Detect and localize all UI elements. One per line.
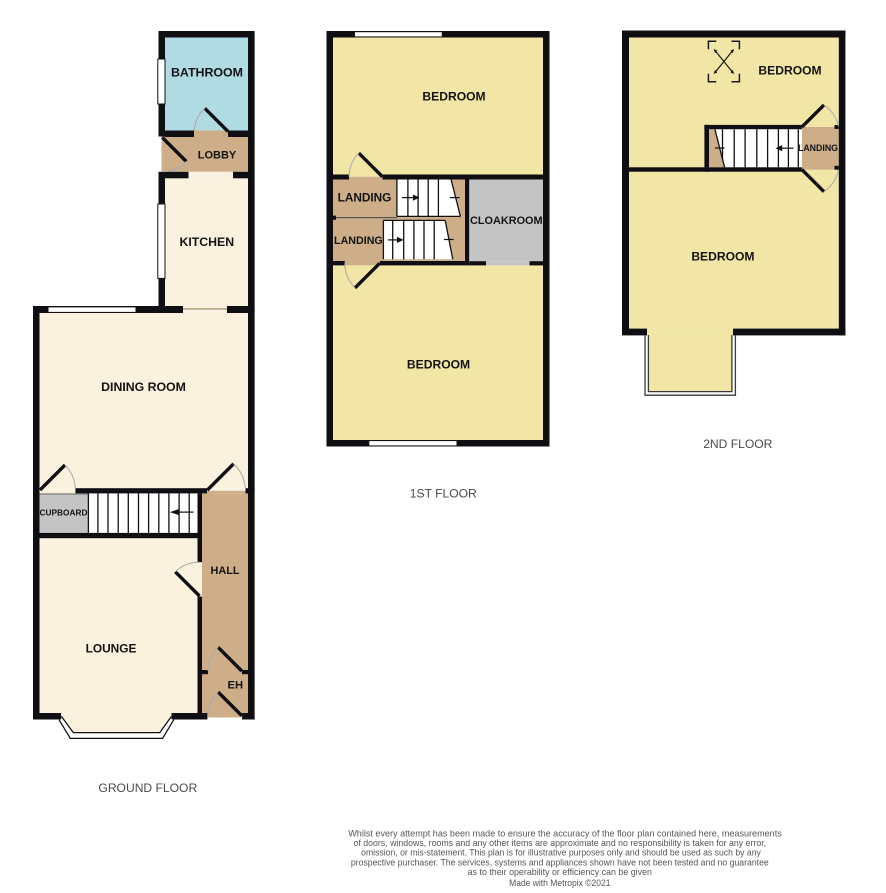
svg-text:HALL: HALL: [210, 565, 239, 577]
svg-text:KITCHEN: KITCHEN: [179, 235, 234, 249]
svg-text:as to their operability or eff: as to their operability or efficiency ca…: [468, 867, 652, 877]
svg-text:of doors, windows, rooms and a: of doors, windows, rooms and any other i…: [353, 838, 766, 848]
svg-text:LOBBY: LOBBY: [198, 150, 237, 162]
svg-text:BATHROOM: BATHROOM: [171, 66, 243, 80]
svg-text:omission, or mis-statement. Th: omission, or mis-statement. This plan is…: [361, 848, 761, 858]
svg-text:Made with Metropix ©2021: Made with Metropix ©2021: [509, 878, 610, 888]
svg-text:LANDING: LANDING: [338, 191, 392, 205]
svg-text:BEDROOM: BEDROOM: [758, 63, 821, 77]
svg-text:LANDING: LANDING: [798, 143, 838, 153]
svg-text:LANDING: LANDING: [334, 235, 383, 247]
svg-text:Whilst every attempt has been: Whilst every attempt has been made to en…: [348, 828, 782, 838]
svg-text:2ND FLOOR: 2ND FLOOR: [703, 437, 772, 451]
svg-text:EH: EH: [228, 680, 244, 692]
svg-text:1ST FLOOR: 1ST FLOOR: [410, 486, 477, 500]
svg-text:BEDROOM: BEDROOM: [691, 250, 754, 264]
svg-text:CLOAKROOM: CLOAKROOM: [470, 215, 543, 227]
svg-text:prospective purchaser. The ser: prospective purchaser. The services, sys…: [351, 857, 769, 867]
svg-text:BEDROOM: BEDROOM: [422, 89, 485, 103]
svg-text:DINING ROOM: DINING ROOM: [101, 380, 186, 394]
svg-text:BEDROOM: BEDROOM: [407, 357, 470, 371]
svg-text:CUPBOARD: CUPBOARD: [40, 508, 88, 518]
svg-text:LOUNGE: LOUNGE: [86, 642, 137, 656]
svg-text:GROUND FLOOR: GROUND FLOOR: [98, 781, 197, 795]
